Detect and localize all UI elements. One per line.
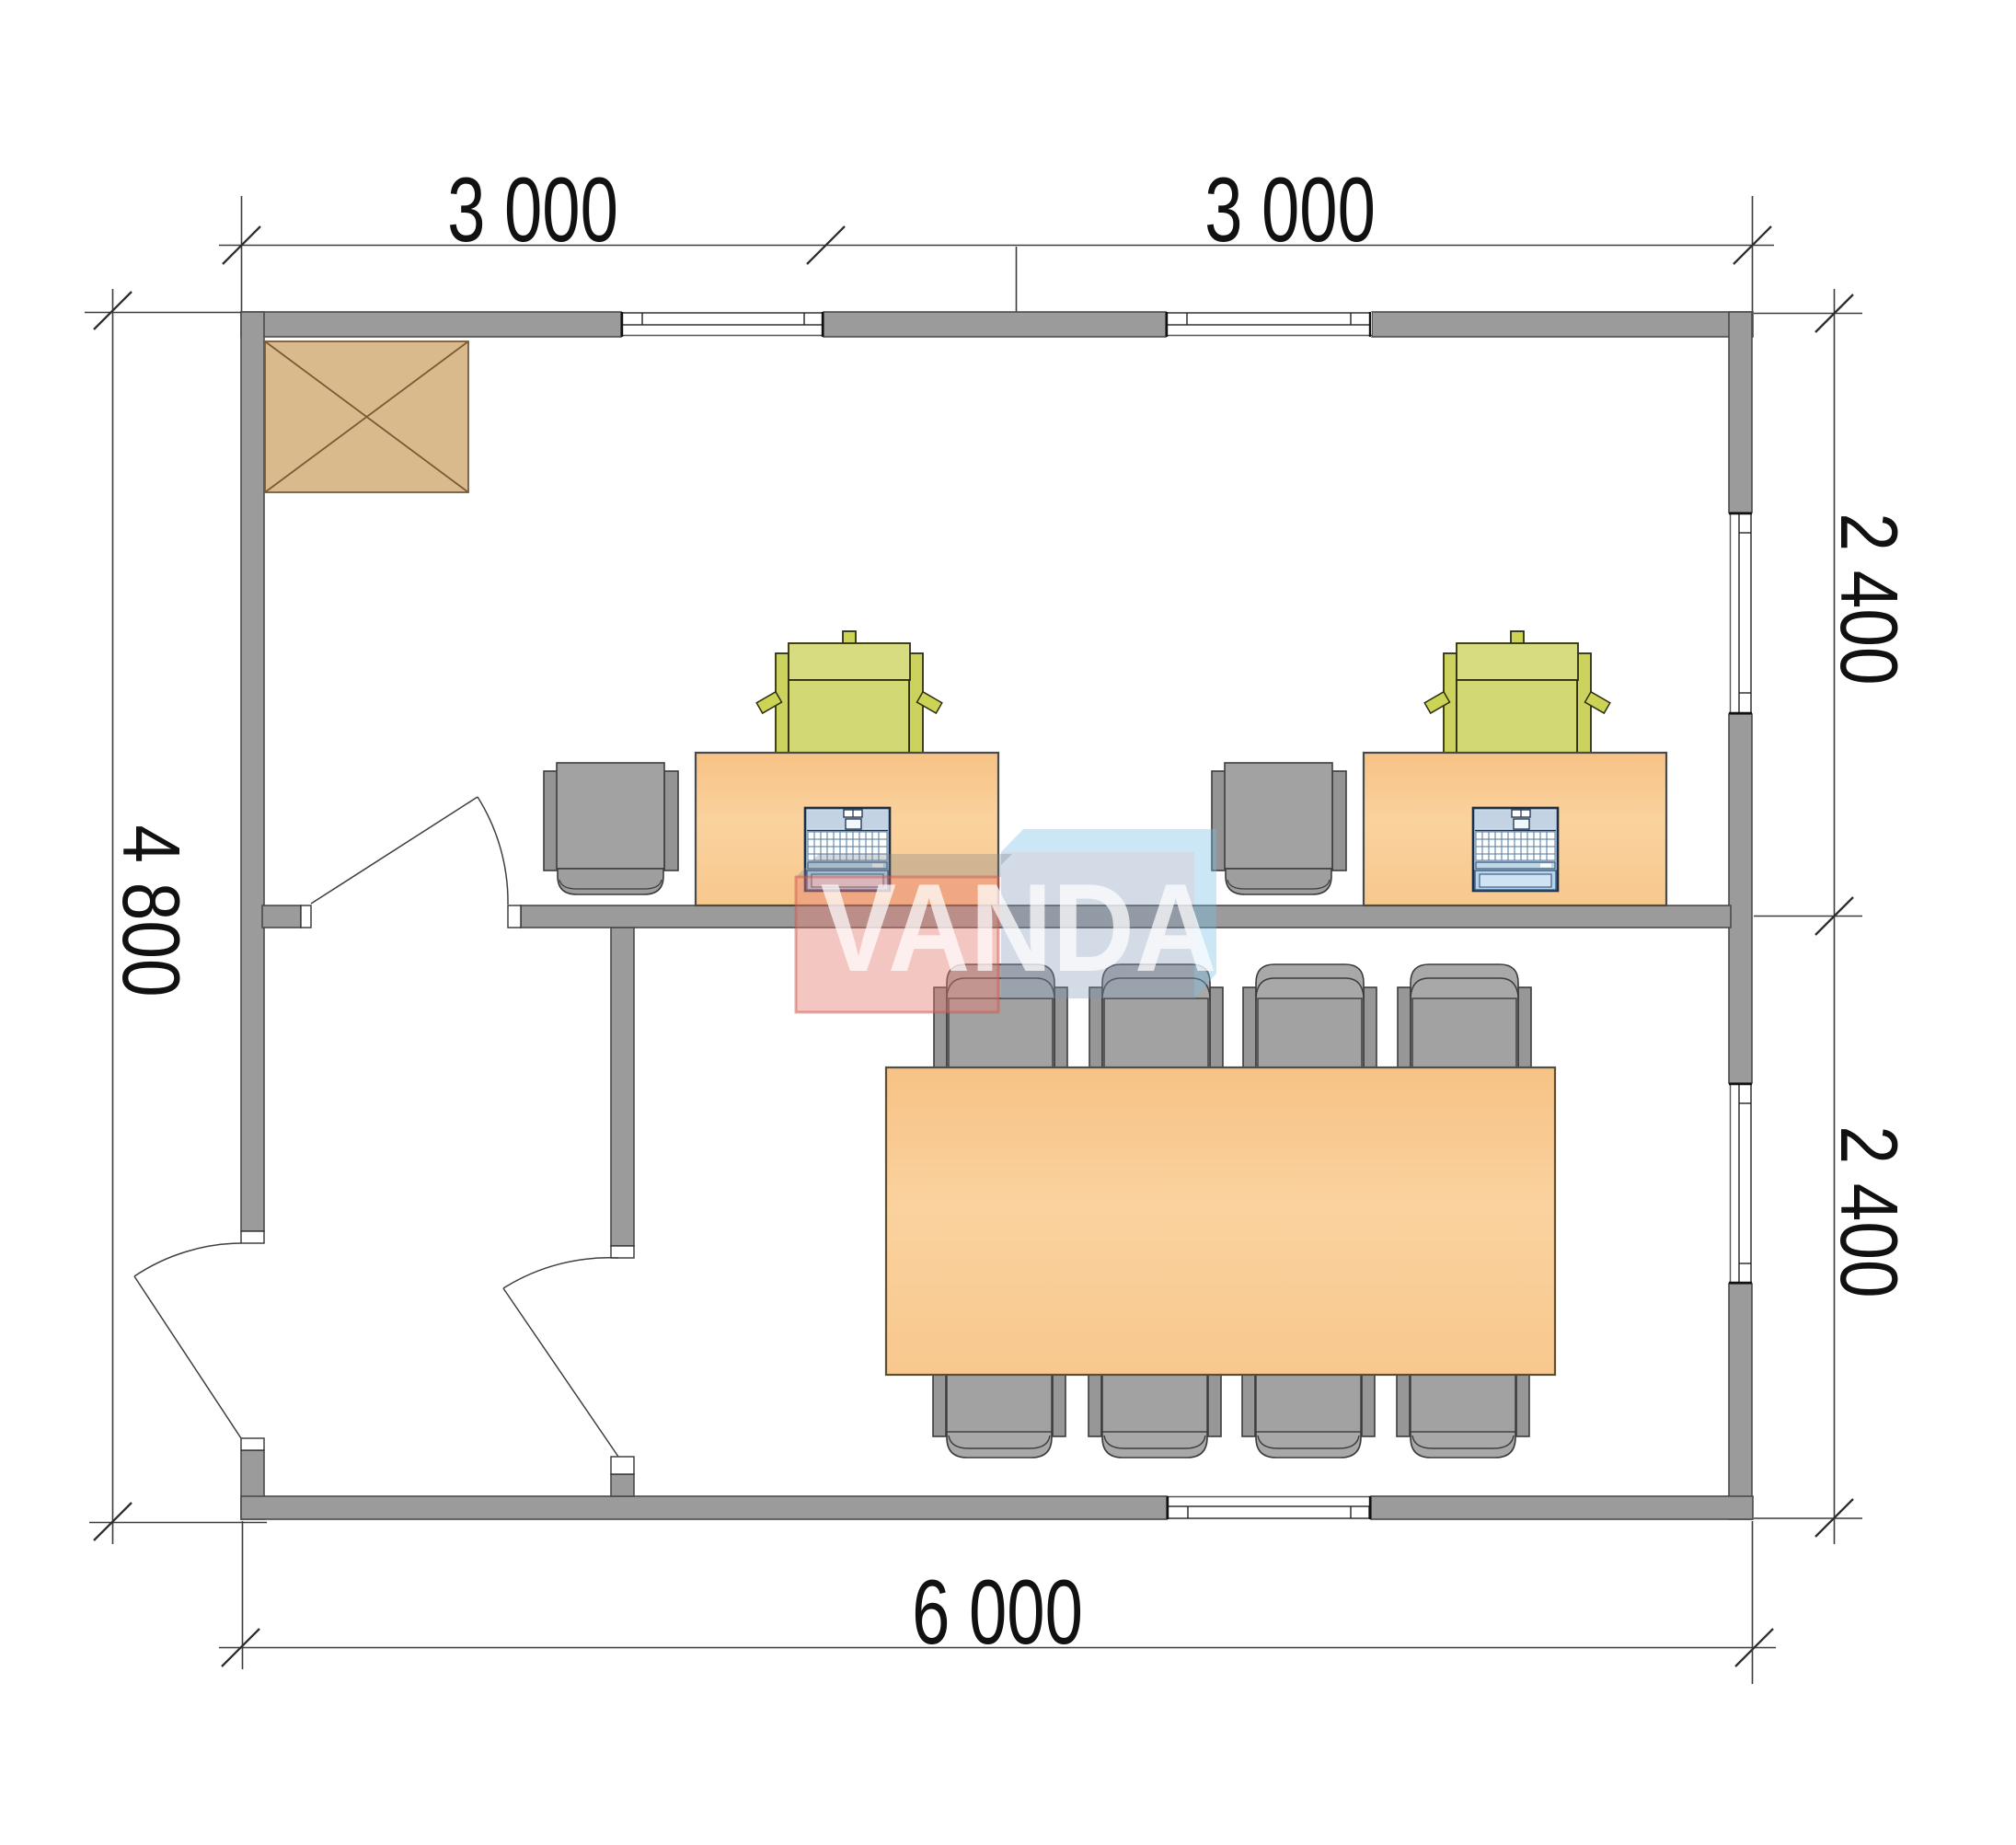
svg-text:6 000: 6 000: [912, 1562, 1083, 1664]
svg-text:2 400: 2 400: [1824, 1125, 1914, 1297]
svg-text:4 800: 4 800: [106, 824, 196, 997]
svg-text:VANDA: VANDA: [821, 858, 1217, 998]
svg-text:2 400: 2 400: [1824, 513, 1914, 685]
svg-text:3 000: 3 000: [1204, 159, 1376, 261]
svg-text:3 000: 3 000: [447, 159, 618, 261]
